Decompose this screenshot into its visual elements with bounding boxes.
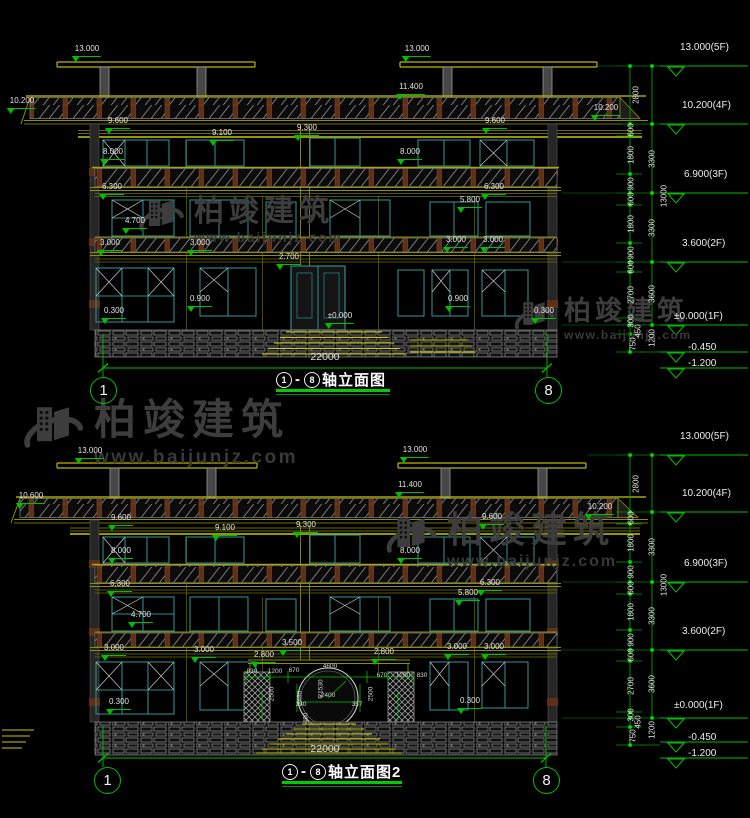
dim-label: 600 [628, 192, 637, 205]
dim-label: 0.900 [188, 295, 212, 307]
dim-label: 13000 [661, 185, 670, 207]
dim-label: 830 [417, 672, 428, 679]
dim-label: 2400 [321, 692, 335, 699]
dim-label: 1200 [649, 329, 658, 347]
dim-label: 9.300 [295, 124, 319, 136]
dim-label: 8.000 [398, 148, 422, 160]
dim-label: 10.200 [8, 97, 36, 109]
dim-label: 1800 [628, 603, 637, 621]
dim-label: 3.000 [445, 643, 469, 655]
dim-label: 4.700 [129, 611, 153, 623]
dim-label: 2.800 [372, 648, 396, 660]
dim-label: 10.200 [592, 104, 620, 116]
axis-bubble-1: 1 [94, 767, 121, 794]
axis-circle: 8 [310, 764, 326, 780]
dim-label: -1.200 [688, 358, 716, 369]
dim-label: -0.450 [688, 342, 716, 353]
dim-label: 750 [630, 337, 639, 350]
drawing-title-1: 1-8轴立面图 [276, 369, 386, 390]
dim-label: 3.000 [192, 646, 216, 658]
cad-elevation-sheet[interactable]: 柏竣建筑 www.baijunjz.com 柏竣建筑 www.baijunjz.… [0, 0, 750, 818]
axis-bubble-8: 8 [535, 377, 562, 404]
dim-label: 670 [377, 672, 388, 679]
dim-label: 450 [635, 324, 644, 337]
dim-label: 0.300 [532, 307, 556, 319]
title-underline [276, 394, 390, 395]
dim-label: 9.100 [213, 524, 237, 536]
dim-label: 6.900(3F) [684, 558, 727, 569]
dim-label: 1200 [396, 672, 410, 679]
dim-label: 3600 [649, 285, 658, 303]
dim-label: 450 [635, 715, 644, 728]
axis-circle: 1 [276, 372, 292, 388]
dim-label: 750 [630, 729, 639, 742]
drawing-title-2: 1-8轴立面图2 [282, 761, 401, 782]
dim-label: 600 [628, 648, 637, 661]
dim-label: 13.000 [403, 45, 431, 57]
dim-label: 3.000 [98, 239, 122, 251]
dim-label: 8.000 [398, 547, 422, 559]
dim-label: 10.200 [586, 503, 614, 515]
dim-label: 900 [628, 246, 637, 259]
dim-label: 900 [628, 177, 637, 190]
dim-label: 13.000 [76, 447, 104, 459]
dim-label: 3.000 [188, 239, 212, 251]
dim-label: 2.800 [252, 651, 276, 663]
dim-label: 13.000(5F) [680, 431, 729, 442]
dim-label: 10.600 [17, 492, 45, 504]
dim-label: 13.000(5F) [680, 42, 729, 53]
dim-label: 1800 [628, 534, 637, 552]
dim-label: 0.300 [107, 698, 131, 710]
dim-label: 22000 [308, 352, 341, 364]
dim-label: 2800 [633, 475, 642, 493]
dim-label: 11.400 [396, 481, 424, 493]
dim-label: ±0.000(1F) [674, 700, 723, 711]
dim-label: 6.300 [478, 579, 502, 591]
dim-label: 9.600 [106, 117, 130, 129]
dim-label: 13000 [661, 574, 670, 596]
dim-label: 3300 [649, 150, 658, 168]
dim-label: 9.600 [483, 117, 507, 129]
dim-label: 0.300 [458, 697, 482, 709]
dim-label: 3300 [649, 538, 658, 556]
dim-label: 3600 [649, 675, 658, 693]
dim-label: 9.600 [109, 514, 133, 526]
dim-label: 3.600(2F) [682, 238, 725, 249]
dim-label: ±0.000(1F) [674, 311, 723, 322]
dim-label: 6.900(3F) [684, 169, 727, 180]
dim-label: 2700 [628, 677, 637, 695]
axis-circle: 8 [304, 372, 320, 388]
dim-label: 4600 [323, 663, 337, 670]
dim-label: 6.300 [100, 183, 124, 195]
dim-label: 600 [628, 511, 637, 524]
dim-label: 3.000 [481, 236, 505, 248]
dim-label: 1800 [628, 146, 637, 164]
dim-label: 22000 [308, 744, 341, 756]
axis-circle: 1 [282, 764, 298, 780]
axis-bubble-8: 8 [533, 767, 560, 794]
dim-label: 2.700 [277, 253, 301, 265]
dim-label: 2800 [633, 86, 642, 104]
dim-label: 600 [628, 581, 637, 594]
dim-label: 5.800 [458, 196, 482, 208]
title-text: 轴立面图2 [328, 761, 401, 782]
dim-label: 330 [296, 701, 307, 708]
dim-label: 3.000 [482, 643, 506, 655]
dim-label: 3.600(2F) [682, 626, 725, 637]
dim-label: 600 [628, 123, 637, 136]
dim-label: 2500 [268, 687, 275, 701]
title-underline [282, 786, 402, 787]
dim-label: 10.200(4F) [682, 100, 731, 111]
dim-label: 13.000 [73, 45, 101, 57]
dim-label: 3.000 [102, 644, 126, 656]
dim-label: 8.000 [109, 547, 133, 559]
dim-label: -0.450 [688, 732, 716, 743]
title-underline [276, 389, 390, 392]
dim-label: 1200 [268, 668, 282, 675]
dim-label: 8.000 [101, 148, 125, 160]
dim-label: -1.200 [688, 748, 716, 759]
dim-label: 480 [302, 713, 309, 724]
dim-label: 9.100 [210, 129, 234, 141]
dim-label: 670 [289, 667, 300, 674]
dim-label: 0.300 [102, 307, 126, 319]
dim-label: 6.300 [108, 580, 132, 592]
dim-label: 900 [628, 565, 637, 578]
dim-label: 9.300 [294, 521, 318, 533]
dim-label: 13.000 [401, 446, 429, 458]
dim-label: 9.600 [480, 513, 504, 525]
dim-label: 900 [628, 633, 637, 646]
dim-label: 2500 [367, 687, 374, 701]
dim-label: 2700 [628, 286, 637, 304]
dim-label: 4.700 [123, 217, 147, 229]
dim-label: 11.400 [397, 83, 425, 95]
dim-label: 830 [247, 668, 258, 675]
title-text: 轴立面图 [322, 369, 386, 390]
dim-label: 3300 [649, 607, 658, 625]
dim-label: 6.300 [482, 183, 506, 195]
dim-label: 3.500 [280, 639, 304, 651]
dim-label: 5.800 [456, 589, 480, 601]
title-underline [282, 781, 402, 784]
dim-label: 1800 [628, 215, 637, 233]
dim-label: 3.000 [444, 236, 468, 248]
dim-label: 3300 [649, 219, 658, 237]
dim-label: 1200 [649, 721, 658, 739]
dim-label: 10.200(4F) [682, 488, 731, 499]
dim-label: 357 [352, 701, 363, 708]
dim-label: 0.900 [446, 295, 470, 307]
dim-label: 600 [628, 260, 637, 273]
dim-label: ±0.000 [326, 312, 354, 324]
dimension-labels: 13.00013.00011.40010.20010.2009.6009.600… [0, 0, 750, 818]
axis-bubble-1: 1 [90, 377, 117, 404]
